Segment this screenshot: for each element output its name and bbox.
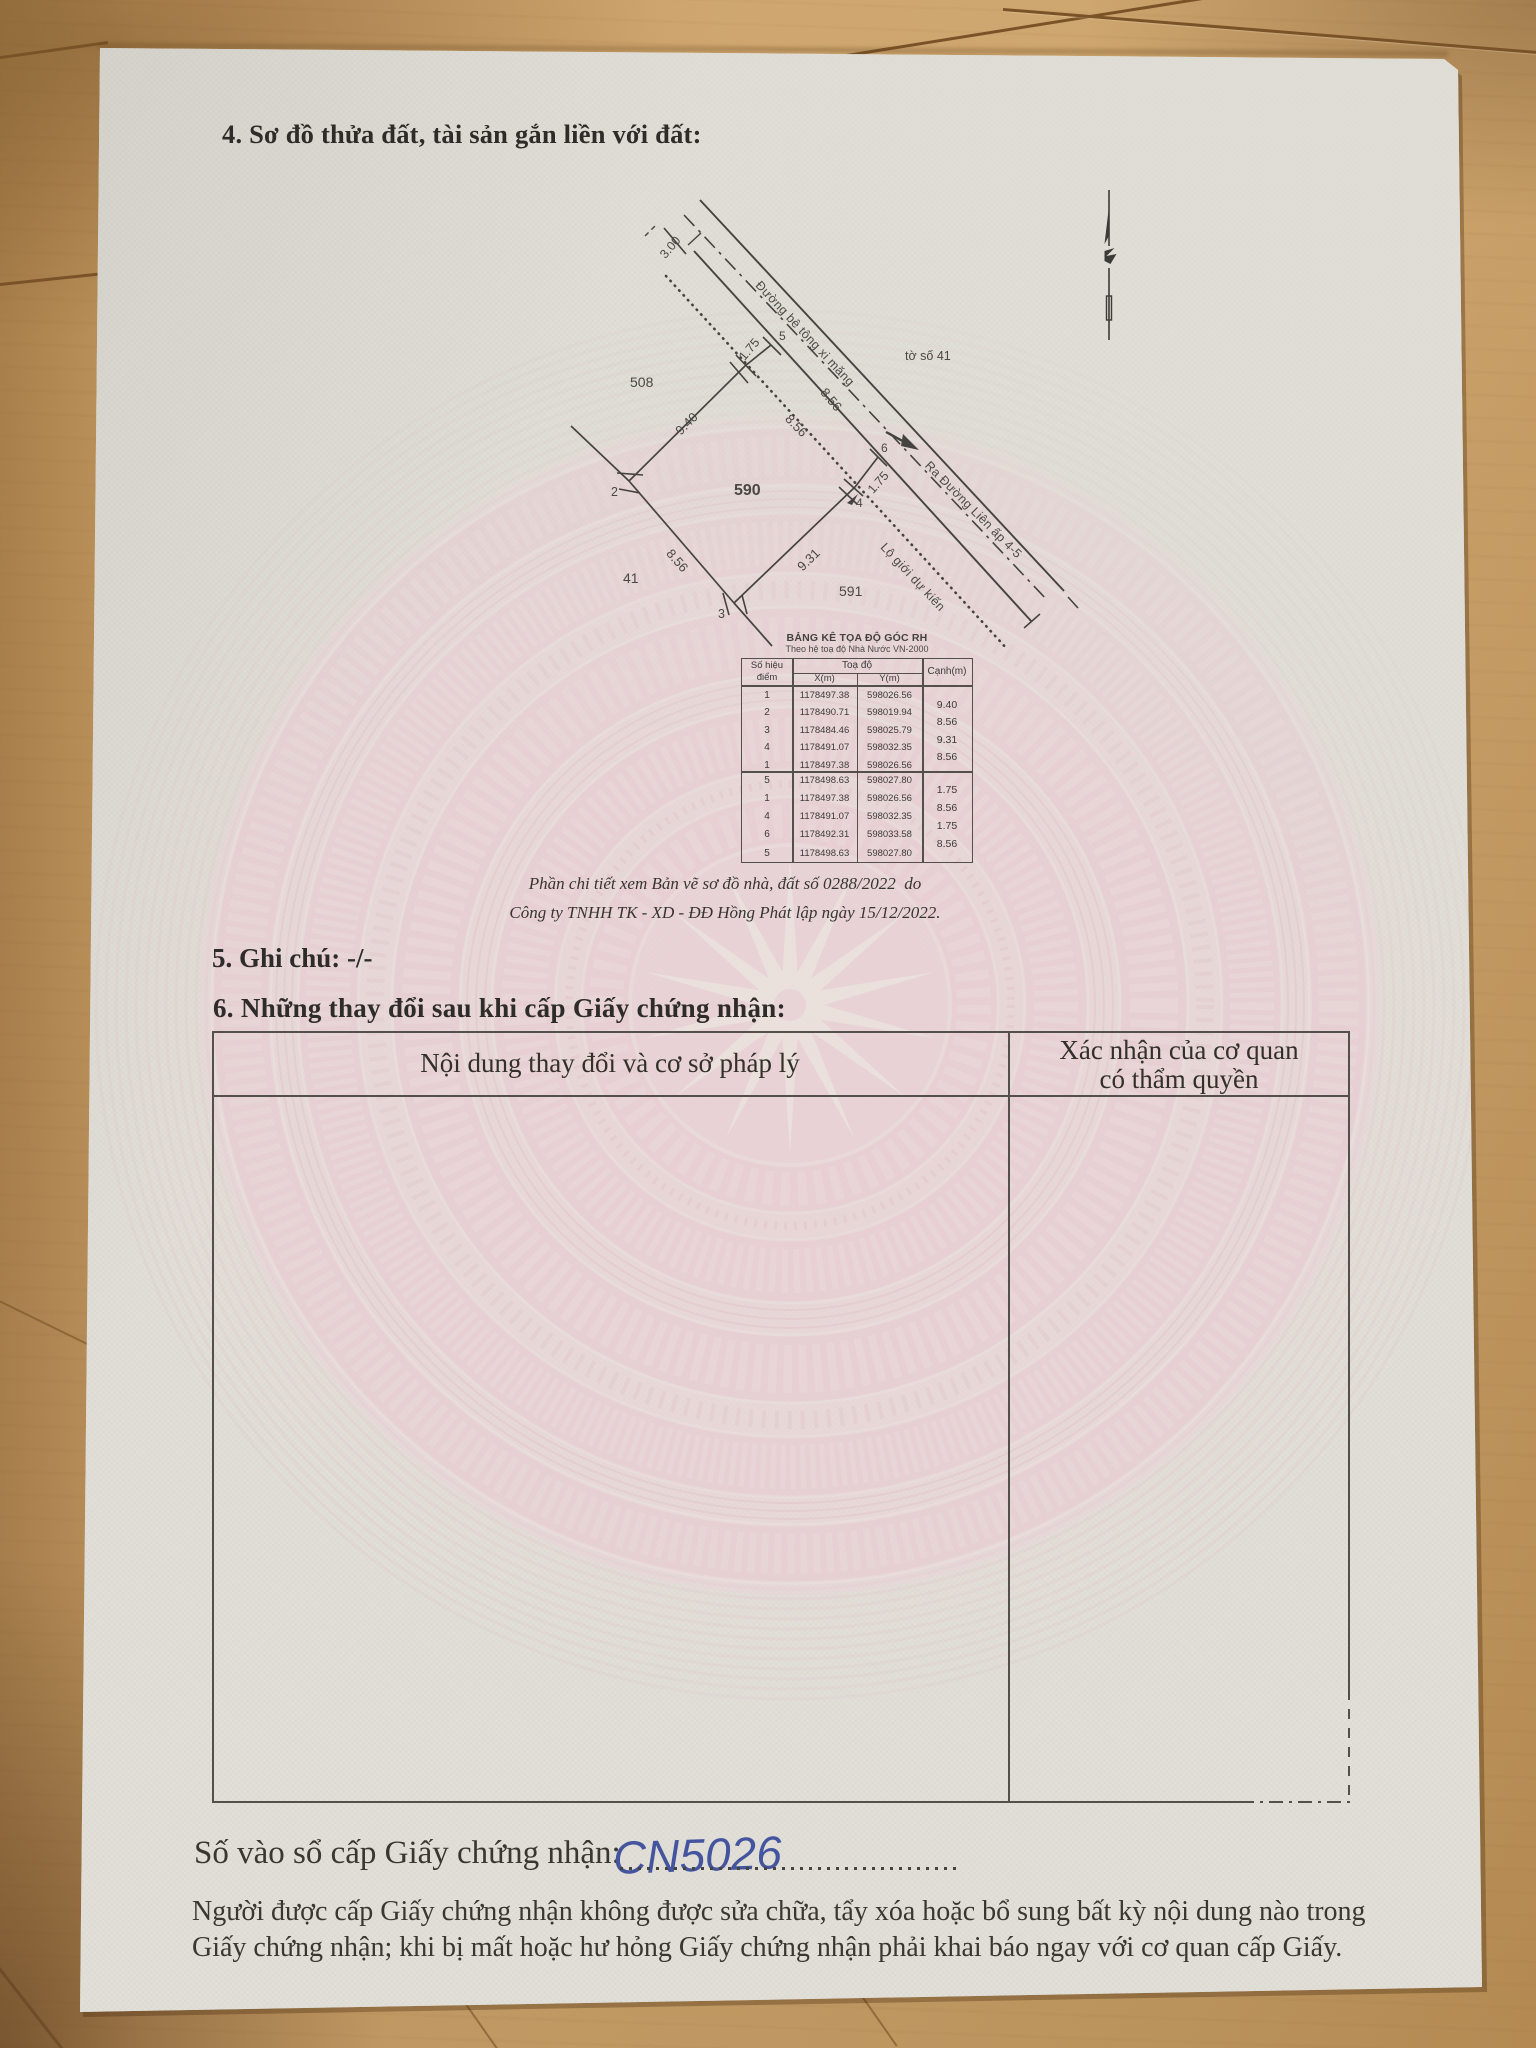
svg-text:4: 4: [856, 496, 863, 510]
svg-text:Lộ giới dự kiến: Lộ giới dự kiến: [878, 540, 948, 614]
svg-text:3: 3: [718, 607, 725, 621]
svg-text:Ra Đường Liên ấp 4-5: Ra Đường Liên ấp 4-5: [922, 459, 1025, 562]
svg-text:41: 41: [623, 570, 639, 586]
svg-text:8.56: 8.56: [817, 385, 845, 414]
svg-text:590: 590: [734, 482, 761, 499]
svg-text:591: 591: [839, 583, 863, 599]
svg-text:8.56: 8.56: [663, 546, 691, 575]
svg-text:8.56: 8.56: [782, 411, 810, 440]
svg-text:508: 508: [630, 374, 654, 390]
svg-text:6: 6: [881, 441, 888, 455]
svg-text:2: 2: [611, 485, 618, 499]
svg-text:tờ số 41: tờ số 41: [905, 349, 951, 363]
svg-text:5: 5: [779, 329, 786, 343]
svg-text:9.31: 9.31: [794, 545, 823, 573]
svg-text:1.75: 1.75: [865, 469, 892, 496]
